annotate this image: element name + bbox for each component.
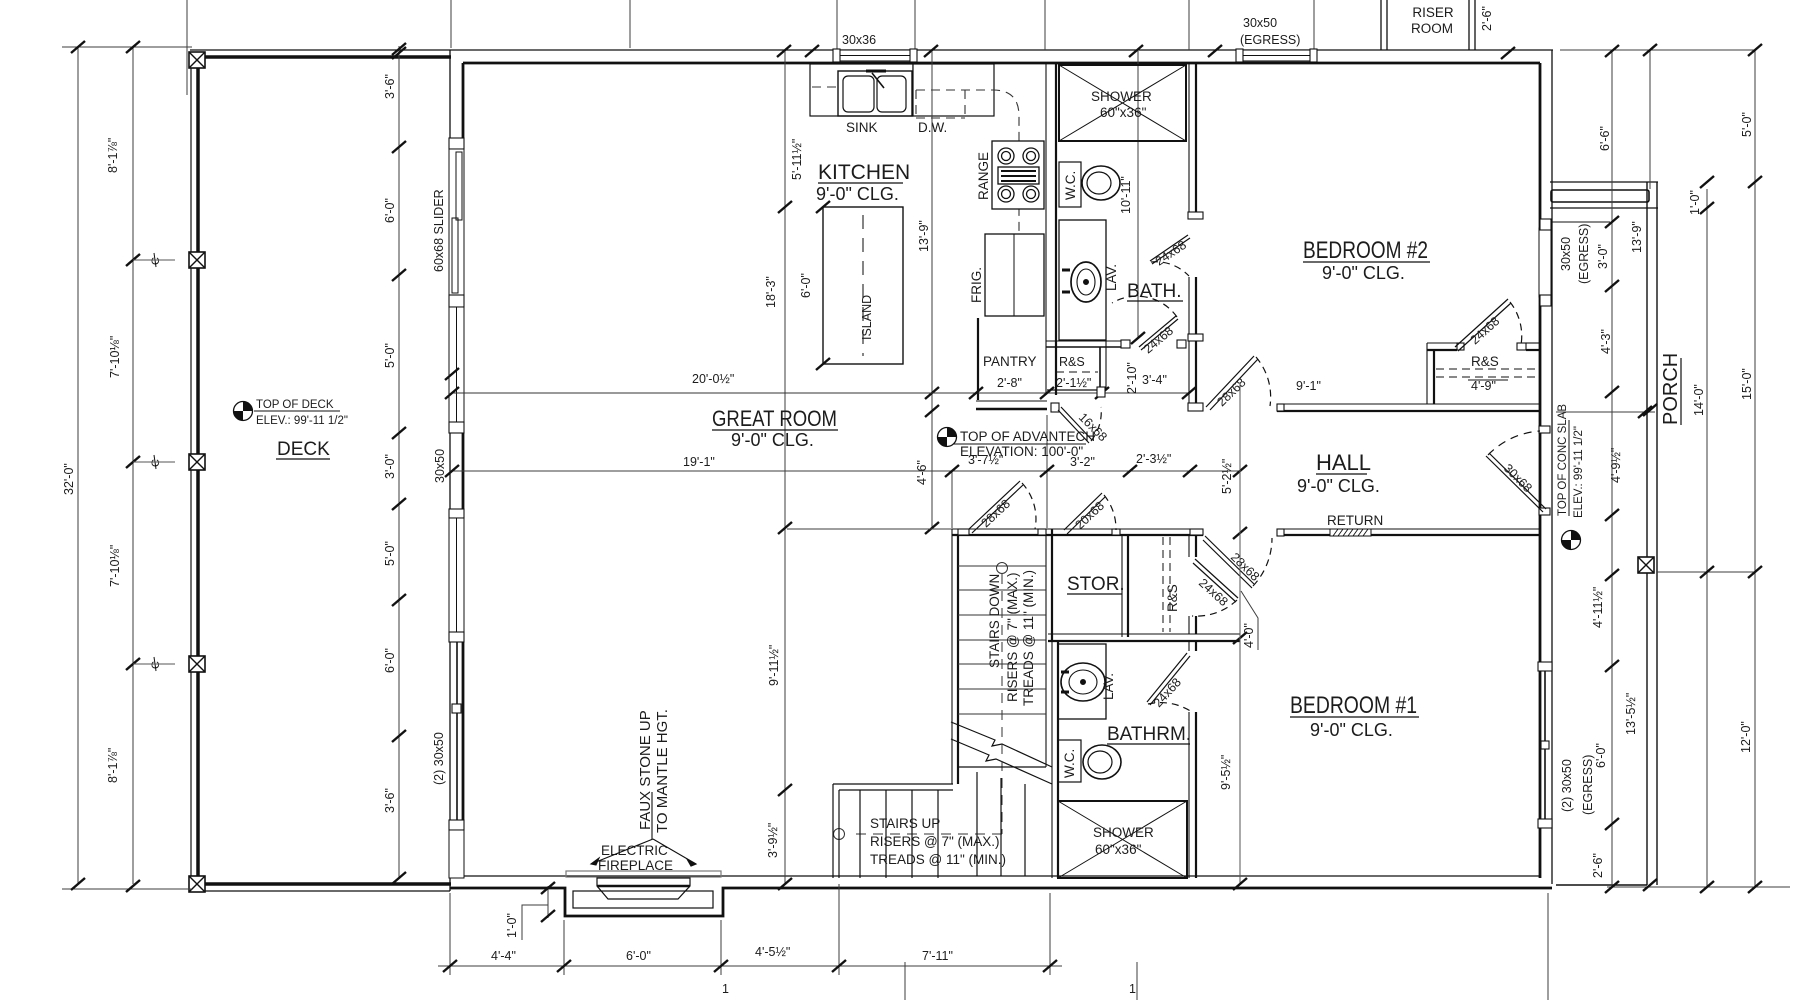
svg-text:RANGE: RANGE bbox=[976, 152, 991, 200]
svg-text:(2) 30x50: (2) 30x50 bbox=[432, 732, 446, 785]
svg-text:5'-2½": 5'-2½" bbox=[1220, 459, 1234, 494]
svg-text:6'-0": 6'-0" bbox=[383, 648, 397, 673]
svg-text:1'-0": 1'-0" bbox=[505, 913, 519, 938]
svg-text:12'-0": 12'-0" bbox=[1739, 721, 1753, 753]
svg-text:1: 1 bbox=[722, 982, 729, 996]
svg-text:R&S: R&S bbox=[1165, 584, 1180, 612]
svg-text:6'-0": 6'-0" bbox=[799, 273, 813, 298]
svg-text:9'-0" CLG.: 9'-0" CLG. bbox=[1310, 720, 1393, 740]
svg-text:SHOWER: SHOWER bbox=[1093, 825, 1154, 840]
svg-text:GREAT ROOM: GREAT ROOM bbox=[712, 406, 837, 431]
svg-text:ISLAND: ISLAND bbox=[860, 295, 874, 340]
svg-text:9'-0" CLG.: 9'-0" CLG. bbox=[731, 430, 814, 450]
svg-text:TOP OF ADVANTECH: TOP OF ADVANTECH bbox=[960, 429, 1095, 444]
svg-text:4'-9": 4'-9" bbox=[1471, 379, 1496, 393]
svg-text:9'-5½": 9'-5½" bbox=[1219, 755, 1233, 790]
svg-text:20'-0½": 20'-0½" bbox=[692, 372, 734, 386]
svg-text:D.W.: D.W. bbox=[918, 120, 947, 135]
svg-text:ELEV.: 99'-11 1/2": ELEV.: 99'-11 1/2" bbox=[256, 415, 348, 427]
svg-text:60"x36": 60"x36" bbox=[1100, 105, 1147, 120]
svg-text:30x50: 30x50 bbox=[1243, 16, 1277, 30]
svg-text:(EGRESS): (EGRESS) bbox=[1240, 33, 1300, 47]
svg-text:13'-9": 13'-9" bbox=[917, 220, 931, 252]
svg-text:19'-1": 19'-1" bbox=[683, 455, 715, 469]
svg-text:9'-0" CLG.: 9'-0" CLG. bbox=[1297, 476, 1380, 496]
svg-text:(EGRESS): (EGRESS) bbox=[1577, 224, 1591, 284]
svg-text:R&S: R&S bbox=[1059, 355, 1085, 369]
svg-text:LAV.: LAV. bbox=[1104, 264, 1119, 291]
svg-text:4'-11½": 4'-11½" bbox=[1591, 587, 1605, 628]
svg-text:2'-1½": 2'-1½" bbox=[1056, 376, 1091, 390]
svg-text:(EGRESS): (EGRESS) bbox=[1581, 755, 1595, 815]
svg-text:9'-11½": 9'-11½" bbox=[767, 645, 781, 686]
svg-text:6'-0": 6'-0" bbox=[626, 949, 651, 963]
svg-text:PORCH: PORCH bbox=[1660, 353, 1682, 425]
svg-text:3'-9½": 3'-9½" bbox=[766, 823, 780, 858]
svg-text:30x36: 30x36 bbox=[842, 33, 876, 47]
svg-text:9'-1": 9'-1" bbox=[1296, 379, 1321, 393]
svg-text:ELEVATION: 100'-0": ELEVATION: 100'-0" bbox=[960, 444, 1083, 459]
svg-text:5'-0": 5'-0" bbox=[383, 541, 397, 566]
svg-text:BATHRM.: BATHRM. bbox=[1107, 724, 1191, 745]
svg-text:4'-9½": 4'-9½" bbox=[1609, 448, 1623, 483]
svg-text:LAV.: LAV. bbox=[1101, 673, 1116, 700]
svg-text:RISER: RISER bbox=[1412, 5, 1454, 20]
svg-text:8'-1⅞": 8'-1⅞" bbox=[106, 748, 120, 783]
svg-text:KITCHEN: KITCHEN bbox=[818, 161, 910, 184]
svg-text:7'-10⅛": 7'-10⅛" bbox=[108, 336, 122, 378]
svg-text:TOP OF DECK: TOP OF DECK bbox=[256, 399, 334, 411]
svg-text:4'-0": 4'-0" bbox=[1242, 623, 1256, 648]
svg-text:7'-11": 7'-11" bbox=[922, 949, 953, 963]
svg-text:TREADS @ 11" (MIN.): TREADS @ 11" (MIN.) bbox=[1021, 570, 1036, 706]
svg-text:BEDROOM #2: BEDROOM #2 bbox=[1303, 237, 1428, 264]
svg-text:1: 1 bbox=[1129, 982, 1136, 996]
svg-text:6'-6": 6'-6" bbox=[1598, 126, 1612, 151]
svg-text:SINK: SINK bbox=[846, 120, 878, 135]
svg-text:FIREPLACE: FIREPLACE bbox=[598, 858, 673, 873]
svg-text:FAUX STONE UP: FAUX STONE UP bbox=[637, 710, 654, 830]
svg-text:5'-0": 5'-0" bbox=[383, 343, 397, 368]
svg-text:60x68 SLIDER: 60x68 SLIDER bbox=[432, 189, 446, 272]
svg-text:HALL: HALL bbox=[1316, 450, 1371, 475]
svg-text:2'-8": 2'-8" bbox=[997, 376, 1022, 390]
svg-text:30x50: 30x50 bbox=[1559, 237, 1573, 271]
svg-text:1'-0": 1'-0" bbox=[1688, 190, 1702, 215]
svg-text:60"x36": 60"x36" bbox=[1095, 842, 1142, 857]
svg-text:2'-6": 2'-6" bbox=[1480, 6, 1494, 31]
svg-text:TREADS @ 11" (MIN.): TREADS @ 11" (MIN.) bbox=[870, 852, 1006, 867]
svg-text:13'-9": 13'-9" bbox=[1630, 221, 1644, 253]
svg-text:FRIG.: FRIG. bbox=[969, 267, 984, 303]
svg-text:2'-6": 2'-6" bbox=[1591, 853, 1605, 878]
svg-text:4'-4": 4'-4" bbox=[491, 949, 516, 963]
svg-text:W.C.: W.C. bbox=[1063, 171, 1078, 200]
svg-text:BEDROOM #1: BEDROOM #1 bbox=[1290, 692, 1417, 719]
svg-text:3'-6": 3'-6" bbox=[383, 74, 397, 99]
svg-text:6'-0": 6'-0" bbox=[1594, 743, 1608, 768]
svg-text:STOR.: STOR. bbox=[1067, 574, 1125, 595]
svg-text:8'-1⅞": 8'-1⅞" bbox=[106, 138, 120, 173]
svg-text:STAIRS DOWN: STAIRS DOWN bbox=[987, 574, 1002, 668]
svg-text:RISERS @ 7" (MAX.): RISERS @ 7" (MAX.) bbox=[870, 834, 1000, 849]
svg-text:18'-3": 18'-3" bbox=[764, 276, 778, 308]
svg-text:RETURN: RETURN bbox=[1327, 513, 1383, 528]
svg-text:7'-10⅛": 7'-10⅛" bbox=[108, 545, 122, 587]
svg-text:3'-4": 3'-4" bbox=[1142, 373, 1167, 387]
svg-text:3'-0": 3'-0" bbox=[383, 454, 397, 479]
svg-text:9'-0" CLG.: 9'-0" CLG. bbox=[1322, 263, 1405, 283]
svg-text:4'-6": 4'-6" bbox=[915, 460, 929, 485]
svg-text:TO MANTLE HGT.: TO MANTLE HGT. bbox=[654, 709, 671, 833]
svg-text:DECK: DECK bbox=[277, 439, 330, 460]
svg-text:5'-0": 5'-0" bbox=[1740, 112, 1754, 137]
svg-text:4'-5½": 4'-5½" bbox=[755, 945, 790, 959]
svg-text:13'-5½": 13'-5½" bbox=[1624, 693, 1638, 735]
svg-text:2'-10": 2'-10" bbox=[1125, 362, 1139, 394]
svg-text:3'-0": 3'-0" bbox=[1596, 244, 1610, 269]
svg-text:ROOM: ROOM bbox=[1411, 21, 1453, 36]
svg-text:14'-0": 14'-0" bbox=[1692, 384, 1706, 416]
svg-text:SHOWER: SHOWER bbox=[1091, 89, 1152, 104]
svg-text:STAIRS UP: STAIRS UP bbox=[870, 816, 940, 831]
svg-text:(2) 30x50: (2) 30x50 bbox=[1560, 759, 1574, 812]
svg-text:R&S: R&S bbox=[1471, 354, 1499, 369]
svg-text:2'-3½": 2'-3½" bbox=[1136, 452, 1171, 466]
svg-text:4'-3": 4'-3" bbox=[1599, 329, 1613, 354]
svg-text:32'-0": 32'-0" bbox=[62, 463, 76, 495]
svg-text:PANTRY: PANTRY bbox=[983, 354, 1037, 369]
svg-text:10'-11": 10'-11" bbox=[1119, 176, 1133, 214]
svg-text:RISERS @ 7" (MAX.): RISERS @ 7" (MAX.) bbox=[1005, 572, 1020, 702]
svg-text:6'-0": 6'-0" bbox=[383, 198, 397, 223]
svg-text:15'-0": 15'-0" bbox=[1740, 368, 1754, 400]
svg-text:W.C.: W.C. bbox=[1062, 749, 1077, 778]
svg-text:TOP OF CONC SLAB: TOP OF CONC SLAB bbox=[1557, 404, 1569, 516]
svg-text:30x50: 30x50 bbox=[433, 449, 447, 483]
svg-text:5'-11½": 5'-11½" bbox=[790, 139, 804, 180]
svg-text:3'-6": 3'-6" bbox=[383, 788, 397, 813]
svg-text:ELEV.: 99'-11 1/2": ELEV.: 99'-11 1/2" bbox=[1573, 426, 1585, 518]
